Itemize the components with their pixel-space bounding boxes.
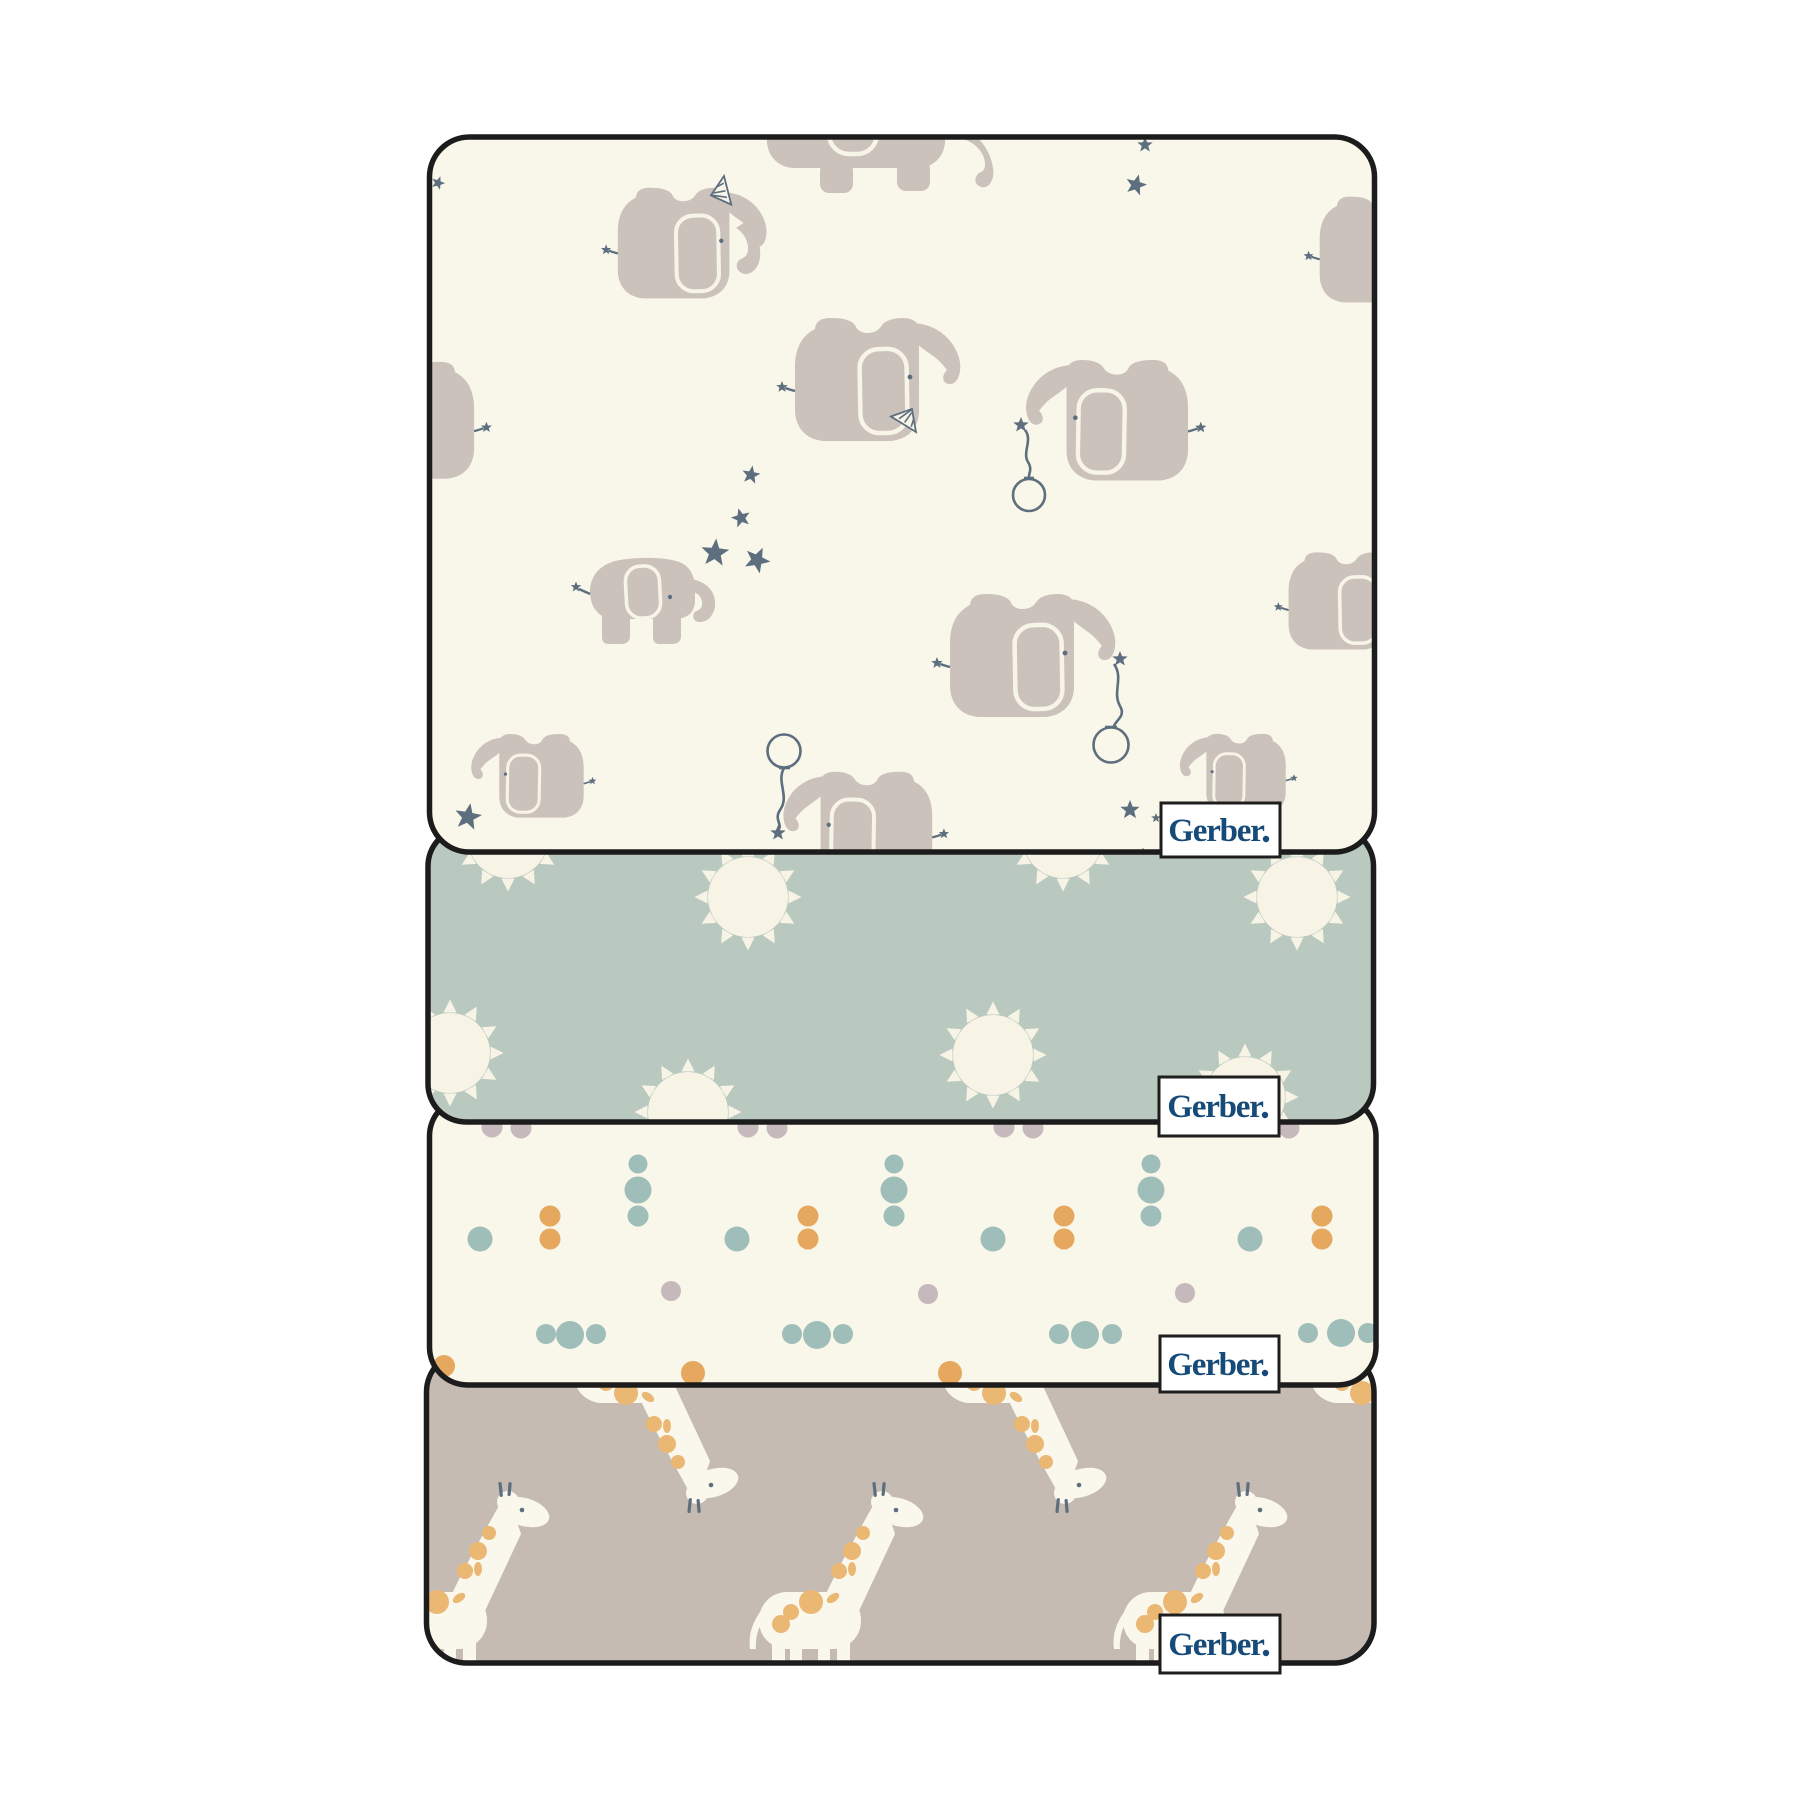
svg-text:Gerber: Gerber bbox=[1168, 813, 1264, 849]
svg-text:Gerber: Gerber bbox=[1168, 1627, 1264, 1663]
svg-text:Gerber: Gerber bbox=[1167, 1347, 1263, 1383]
svg-text:Gerber: Gerber bbox=[1167, 1089, 1263, 1125]
